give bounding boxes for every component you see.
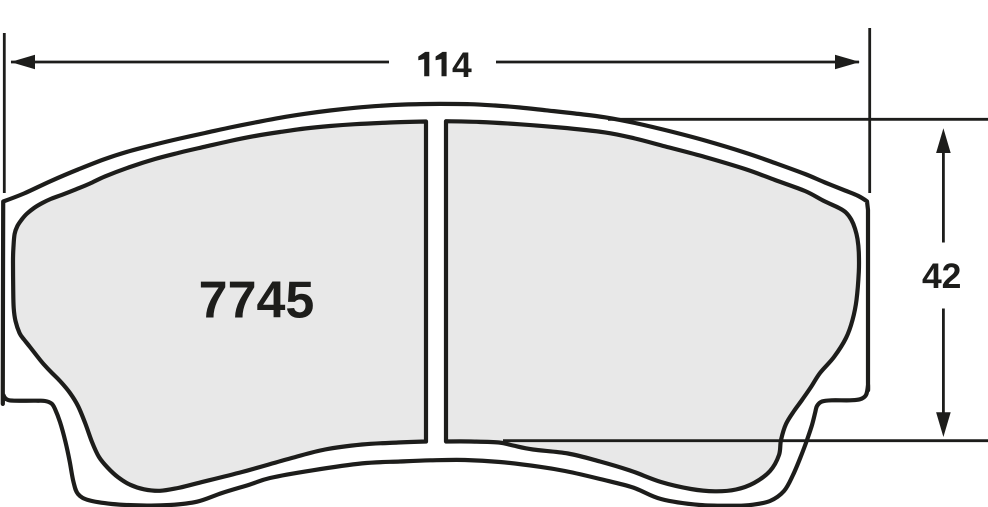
svg-text:7745: 7745 — [199, 272, 315, 330]
svg-text:4: 4 — [452, 45, 472, 85]
svg-text:42: 42 — [922, 256, 962, 296]
